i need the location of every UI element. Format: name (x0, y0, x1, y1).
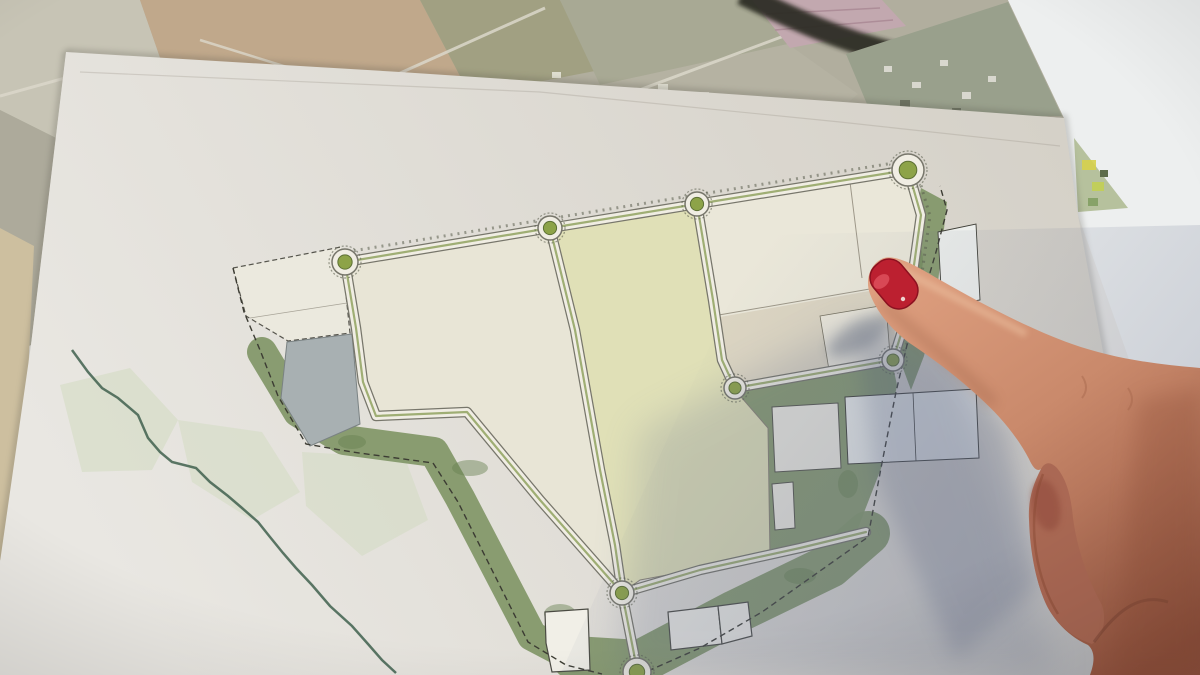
vignette (0, 0, 1200, 675)
masterplan-sheet-layer (0, 0, 1200, 675)
scene-canvas (0, 0, 1200, 675)
photograph-of-masterplan (0, 0, 1200, 675)
